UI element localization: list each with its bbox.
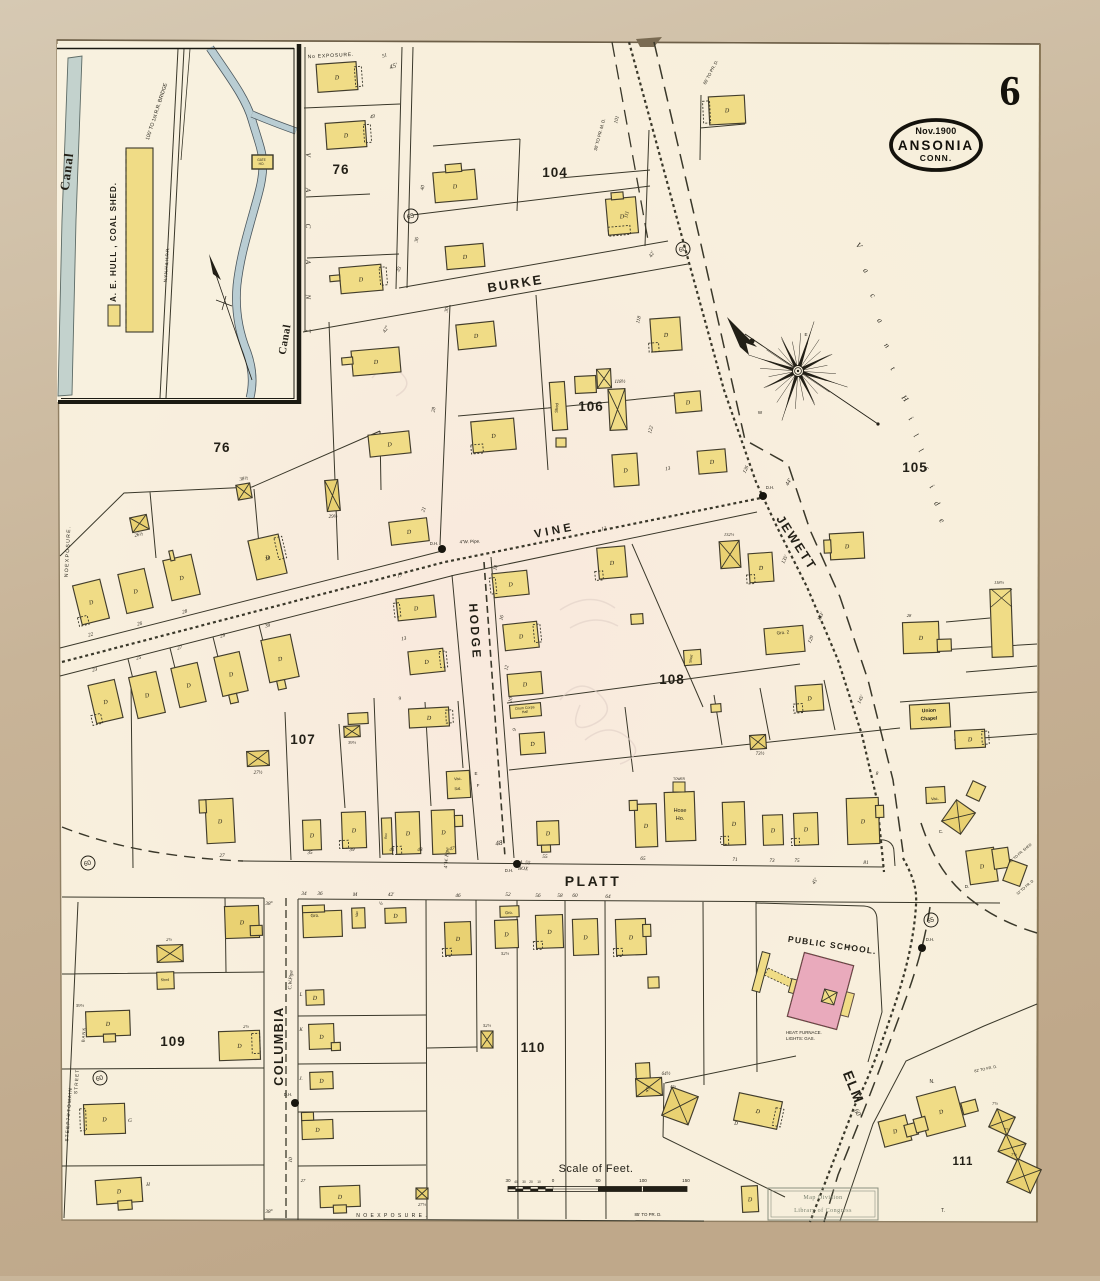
svg-text:111: 111	[953, 1156, 974, 1168]
svg-text:85' TO PR. D.: 85' TO PR. D.	[634, 1212, 661, 1217]
svg-text:105: 105	[902, 460, 928, 475]
svg-text:Roc: Roc	[384, 833, 388, 839]
svg-text:D.: D.	[965, 884, 970, 889]
svg-text:PLATT: PLATT	[565, 873, 622, 889]
svg-text:Map Division: Map Division	[803, 1195, 842, 1201]
svg-text:K: K	[298, 1028, 303, 1033]
svg-text:107: 107	[290, 732, 316, 747]
svg-text:T.: T.	[941, 1208, 945, 1214]
svg-text:Hose: Hose	[674, 808, 687, 814]
svg-text:D: D	[217, 819, 223, 825]
svg-text:D: D	[844, 544, 850, 550]
svg-text:D.H.: D.H.	[926, 937, 934, 942]
svg-text:Chapel: Chapel	[920, 716, 938, 723]
svg-text:27½: 27½	[254, 771, 263, 776]
svg-text:2½: 2½	[243, 1024, 249, 1029]
svg-text:D: D	[337, 1195, 343, 1201]
svg-text:36: 36	[317, 891, 323, 897]
svg-text:48': 48'	[495, 838, 505, 847]
svg-text:D.H.: D.H.	[766, 485, 774, 490]
svg-text:65: 65	[640, 856, 646, 862]
svg-text:D.H.: D.H.	[505, 868, 513, 873]
svg-text:40: 40	[514, 1180, 518, 1184]
svg-text:27½: 27½	[418, 1202, 427, 1207]
svg-text:LIGHTS: GAS.: LIGHTS: GAS.	[786, 1036, 815, 1041]
svg-text:M: M	[352, 892, 358, 898]
svg-text:75: 75	[794, 858, 800, 864]
svg-text:43: 43	[417, 846, 423, 853]
svg-text:Hall: Hall	[522, 710, 529, 715]
svg-text:41: 41	[389, 846, 395, 853]
svg-text:G: G	[128, 1118, 132, 1124]
svg-text:73: 73	[769, 858, 775, 864]
svg-text:118½: 118½	[994, 580, 1005, 585]
svg-text:118½: 118½	[615, 380, 626, 385]
svg-text:A. E. HULL , COAL SHED.: A. E. HULL , COAL SHED.	[109, 182, 118, 302]
svg-text:D: D	[770, 828, 776, 834]
svg-text:106: 106	[578, 399, 604, 414]
svg-text:D: D	[967, 737, 973, 743]
svg-text:59½: 59½	[76, 1003, 85, 1008]
svg-text:C.: C.	[939, 829, 944, 834]
svg-text:64½: 64½	[662, 1072, 671, 1077]
svg-text:50: 50	[595, 1178, 601, 1183]
svg-text:0: 0	[552, 1178, 555, 1183]
svg-text:20: 20	[529, 1180, 533, 1184]
svg-text:E: E	[474, 771, 477, 776]
svg-text:73½: 73½	[756, 752, 765, 757]
svg-text:D: D	[582, 935, 588, 941]
svg-text:52½: 52½	[501, 951, 510, 956]
svg-text:42': 42'	[388, 891, 395, 898]
svg-text:D: D	[312, 996, 318, 1002]
svg-text:6: 6	[1000, 69, 1021, 115]
svg-text:D.H.: D.H.	[284, 1092, 292, 1097]
svg-text:D: D	[309, 833, 315, 839]
svg-text:34: 34	[301, 890, 307, 897]
svg-text:35: 35	[307, 850, 313, 856]
svg-text:Vac.: Vac.	[931, 796, 939, 801]
svg-text:D: D	[105, 1022, 111, 1028]
svg-text:109: 109	[160, 1034, 186, 1049]
svg-text:½: ½	[379, 901, 383, 906]
svg-text:Ho.: Ho.	[676, 816, 685, 822]
svg-text:Shed: Shed	[161, 978, 170, 982]
svg-text:30: 30	[505, 1178, 511, 1183]
svg-text:27: 27	[219, 853, 225, 859]
svg-text:10: 10	[537, 1180, 541, 1184]
svg-text:Vac.: Vac.	[454, 776, 462, 781]
svg-text:104: 104	[542, 165, 568, 180]
svg-text:D: D	[747, 1197, 753, 1203]
svg-text:110: 110	[521, 1040, 546, 1055]
svg-text:Scale of Feet.: Scale of Feet.	[559, 1163, 634, 1175]
svg-text:F: F	[477, 783, 480, 788]
svg-text:27: 27	[301, 1178, 306, 1183]
svg-text:B A N K: B A N K	[81, 1027, 87, 1042]
svg-text:D.H.: D.H.	[430, 541, 438, 546]
svg-text:Library of Congress: Library of Congress	[794, 1207, 852, 1214]
svg-text:H: H	[145, 1183, 150, 1188]
svg-text:BOX: BOX	[518, 866, 529, 873]
svg-text:D: D	[860, 819, 866, 825]
svg-text:L: L	[299, 993, 303, 998]
svg-text:58: 58	[557, 893, 563, 899]
svg-text:HEAT: FURNACE.: HEAT: FURNACE.	[786, 1030, 822, 1035]
svg-text:D: D	[733, 1122, 738, 1127]
svg-text:7½: 7½	[992, 1101, 998, 1106]
svg-text:Vac: Vac	[355, 911, 359, 917]
svg-text:60: 60	[572, 893, 578, 899]
svg-text:TOWER: TOWER	[673, 777, 686, 781]
svg-text:4½: 4½	[670, 1084, 676, 1089]
svg-text:HO.: HO.	[259, 162, 265, 166]
svg-text:76: 76	[332, 162, 349, 177]
svg-text:E: E	[804, 332, 807, 337]
svg-text:D: D	[455, 937, 461, 943]
svg-text:D: D	[426, 716, 432, 722]
svg-text:52½: 52½	[483, 1023, 492, 1028]
svg-text:COLUMBIA: COLUMBIA	[272, 1006, 286, 1085]
svg-text:28: 28	[907, 613, 912, 618]
svg-text:Sal.: Sal.	[454, 786, 461, 791]
svg-text:D: D	[918, 636, 924, 642]
svg-text:Gro.: Gro.	[310, 913, 319, 918]
svg-text:8: 8	[876, 771, 879, 777]
svg-text:D: D	[318, 1035, 324, 1041]
svg-text:ANSONIA: ANSONIA	[898, 138, 974, 153]
svg-text:Union: Union	[922, 708, 936, 715]
svg-text:2½: 2½	[166, 937, 172, 942]
svg-text:52: 52	[505, 892, 511, 898]
svg-text:39: 39	[349, 847, 355, 853]
svg-text:D: D	[724, 108, 730, 114]
svg-text:71: 71	[732, 857, 738, 863]
svg-text:Shed: Shed	[554, 402, 560, 413]
svg-text:N O E X P O S U R E .: N O E X P O S U R E .	[356, 1213, 427, 1219]
svg-text:132½: 132½	[724, 532, 735, 537]
svg-text:N.: N.	[930, 1079, 935, 1085]
svg-text:30: 30	[522, 1180, 526, 1184]
svg-text:D: D	[405, 831, 411, 837]
svg-text:47: 47	[449, 845, 455, 852]
svg-text:D: D	[392, 914, 398, 920]
svg-text:56: 56	[535, 893, 541, 899]
svg-text:D: D	[803, 827, 809, 833]
svg-text:D: D	[351, 828, 357, 834]
svg-text:D: D	[440, 830, 446, 836]
svg-text:D: D	[101, 1117, 107, 1123]
svg-text:46: 46	[455, 892, 461, 899]
svg-text:108: 108	[659, 672, 685, 687]
svg-text:CONN.: CONN.	[920, 153, 952, 163]
svg-text:10: 10	[288, 1157, 294, 1163]
svg-text:64: 64	[605, 893, 611, 900]
svg-text:D: D	[503, 932, 509, 938]
svg-text:38°: 38°	[265, 900, 272, 907]
svg-text:39½: 39½	[348, 740, 357, 745]
svg-text:Nov.1900: Nov.1900	[915, 126, 956, 136]
svg-text:D: D	[546, 930, 552, 936]
svg-text:76: 76	[213, 440, 230, 455]
svg-text:D: D	[314, 1128, 320, 1134]
svg-text:Gro.: Gro.	[505, 910, 513, 915]
svg-text:150: 150	[682, 1178, 690, 1183]
svg-text:38°: 38°	[265, 1208, 272, 1215]
svg-text:D: D	[318, 1079, 324, 1085]
svg-text:D: D	[239, 920, 245, 926]
svg-text:D: D	[628, 935, 634, 941]
svg-text:D: D	[545, 831, 551, 837]
svg-text:29½: 29½	[329, 515, 338, 520]
svg-text:7½: 7½	[1011, 1152, 1017, 1157]
svg-text:D: D	[236, 1044, 242, 1050]
svg-text:100: 100	[639, 1178, 647, 1183]
svg-text:81: 81	[863, 860, 869, 866]
svg-text:D: D	[643, 824, 649, 830]
svg-text:7½: 7½	[1004, 1127, 1010, 1132]
svg-text:D: D	[731, 822, 737, 828]
svg-text:4"W. Pipe.: 4"W. Pipe.	[459, 539, 480, 545]
svg-text:J.: J.	[299, 1077, 302, 1082]
svg-text:55: 55	[542, 854, 548, 860]
